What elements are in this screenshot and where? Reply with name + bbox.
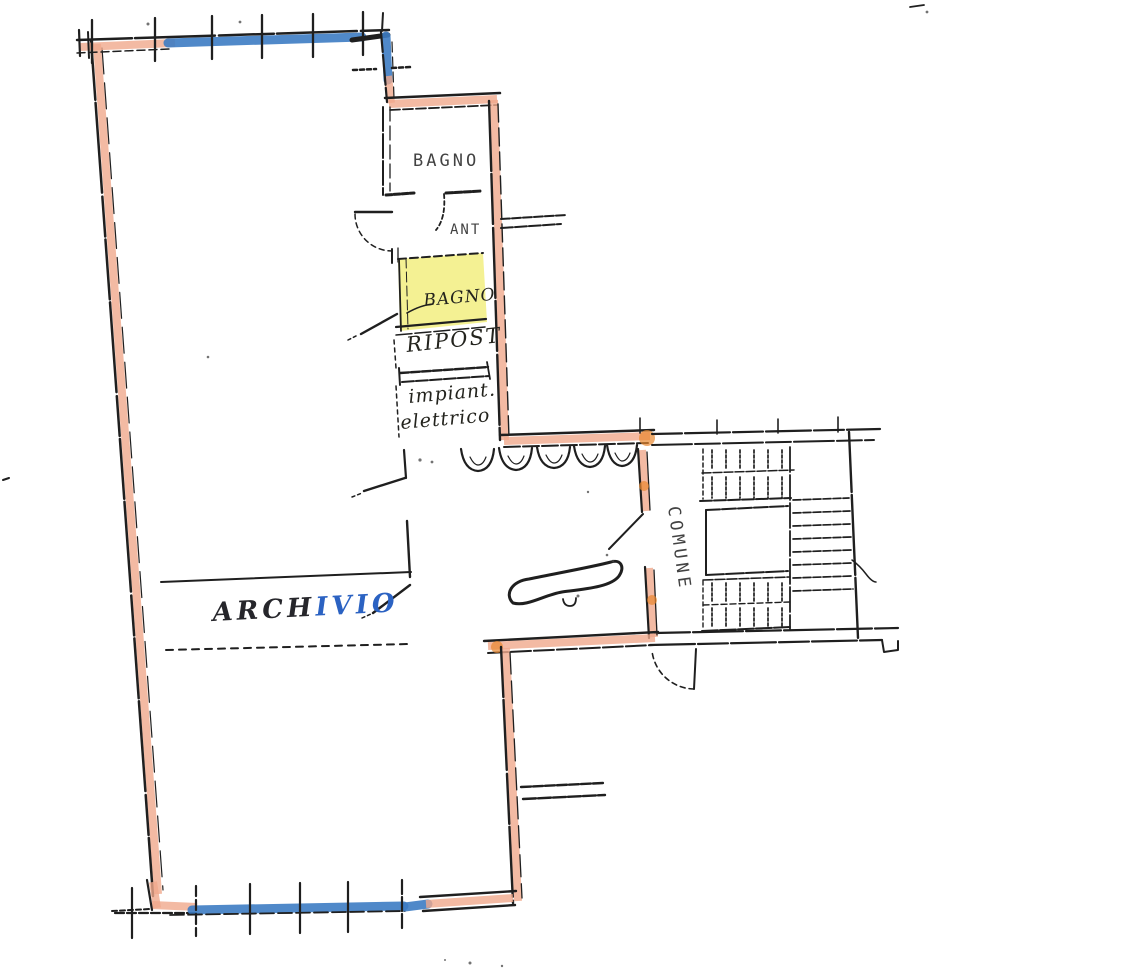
stair-entry-door (652, 649, 696, 689)
floor-plan-canvas: BAGNO ANT BAGNO RIPOST impiant. elettric… (0, 0, 1148, 969)
room-label-impianto-line2: elettrico (400, 404, 492, 434)
room-label-archivio: ARCHIVIO (209, 588, 400, 628)
room-labels: BAGNO ANT BAGNO RIPOST impiant. elettric… (209, 151, 695, 628)
door-leaf-toilet-upper (364, 478, 405, 491)
stairwell-top-wall (640, 417, 880, 445)
stair-treads-side (793, 498, 853, 591)
toilet-room-bottom-wall (484, 632, 658, 653)
left-wall (91, 40, 163, 896)
bottom-wall-window (112, 880, 516, 938)
neighbor-wall-stub-lower (521, 783, 605, 799)
top-right-jog-wall (353, 13, 411, 103)
sink-fixture (461, 449, 494, 471)
archivio-label-blue-part: IVIO (314, 588, 400, 622)
stair-treads-lower (702, 577, 790, 631)
room-label-anti: ANT (450, 222, 481, 238)
door-leaf-ripostiglio (361, 314, 397, 334)
sink-fixture (574, 446, 605, 467)
scan-speck (3, 478, 9, 480)
sink-fixtures-row (418, 445, 637, 471)
door-arc-stair (652, 651, 694, 689)
stairwell-label-comune: COMUNE (663, 505, 695, 592)
door-leaf-comune (609, 514, 643, 549)
archivio-right-wall (501, 647, 522, 903)
door-leaf-anti (436, 194, 444, 230)
sink-fixture (537, 447, 570, 468)
bagno-top-wall (385, 93, 500, 110)
archivio-label-dark-part: ARCH (209, 593, 316, 629)
door-arc-main-anti (355, 214, 392, 251)
door-leaf-stair (694, 649, 696, 689)
toilet-room-right-wall (638, 449, 657, 638)
stair-treads-upper (700, 449, 794, 501)
room-label-bagno: BAGNO (413, 151, 479, 171)
toilet-room-top-wall (500, 430, 655, 447)
drain-glyph (563, 598, 576, 606)
room-label-impianto-line1: impiant. (408, 378, 497, 408)
sink-fixture (499, 448, 532, 470)
stairwell-right-wall (849, 432, 876, 638)
neighbor-wall-stub-upper (501, 215, 566, 228)
sink-fixture (607, 445, 637, 466)
stairwell-bottom-wall (650, 628, 898, 652)
counter-blob-outline (509, 561, 622, 606)
scan-speck (910, 5, 924, 7)
top-wall-window (77, 12, 389, 63)
scanned-floor-plan-page: BAGNO ANT BAGNO RIPOST impiant. elettric… (0, 0, 1148, 969)
stair-inner-well (706, 506, 788, 575)
